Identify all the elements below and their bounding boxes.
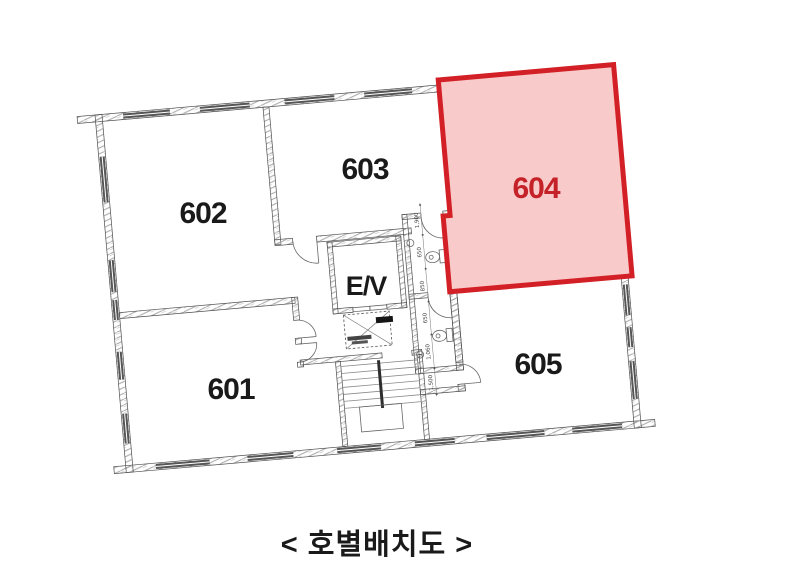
room-label-601: 601 bbox=[207, 373, 254, 406]
floor-plan-figure: 1,900 650 850 650 1,060 1,500 602 603 60… bbox=[0, 0, 800, 583]
room-label-602: 602 bbox=[179, 197, 226, 230]
plan-caption: < 호별배치도 > bbox=[281, 528, 473, 561]
interior-walls bbox=[103, 92, 470, 465]
room-label-603: 603 bbox=[341, 153, 388, 186]
dim-label: 1,060 bbox=[425, 343, 432, 360]
elevator-label: E/V bbox=[346, 271, 388, 301]
dim-label: 1,500 bbox=[428, 374, 435, 391]
floor-plan-svg: 1,900 650 850 650 1,060 1,500 602 603 60… bbox=[0, 0, 800, 583]
dim-label: 650 bbox=[417, 246, 424, 257]
elevator-pit-marking bbox=[343, 311, 395, 349]
room-label-605: 605 bbox=[514, 348, 561, 381]
dim-label: 650 bbox=[422, 312, 429, 323]
room-label-604: 604 bbox=[512, 172, 560, 205]
staircase bbox=[341, 357, 424, 433]
dim-label: 850 bbox=[420, 280, 427, 291]
building-plan: 1,900 650 850 650 1,060 1,500 bbox=[77, 64, 656, 474]
